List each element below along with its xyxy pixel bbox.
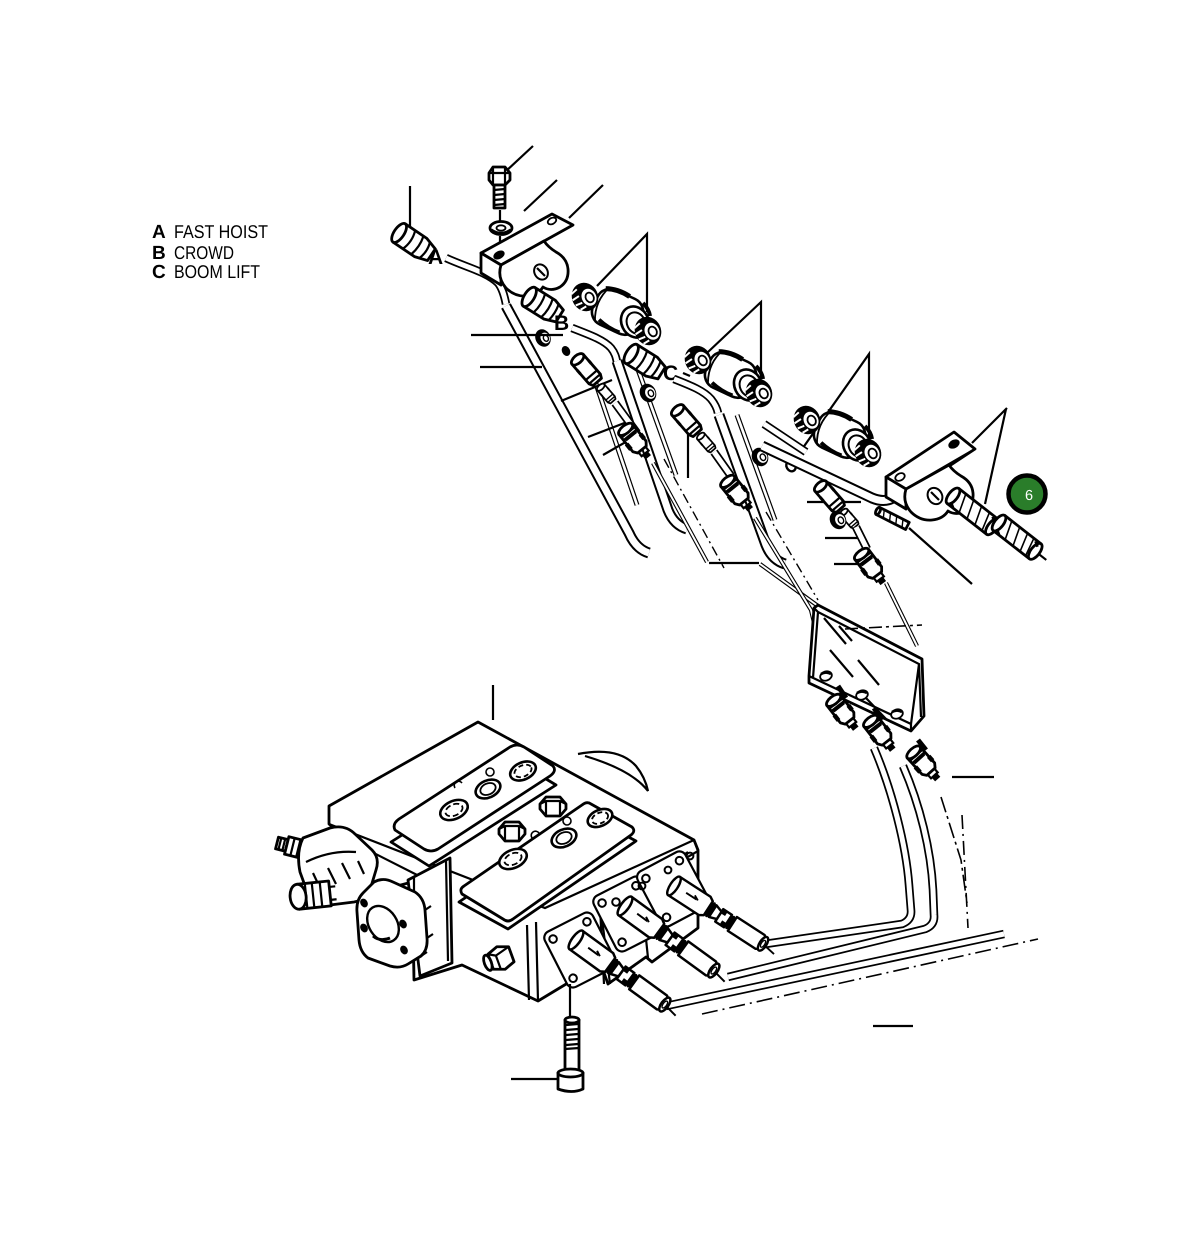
svg-text:B: B [554,312,569,335]
svg-text:FAST HOIST: FAST HOIST [174,221,268,242]
svg-text:A: A [152,222,166,243]
svg-text:BOOM LIFT: BOOM LIFT [174,261,260,282]
svg-text:C: C [152,262,166,283]
svg-text:6: 6 [1025,488,1033,504]
svg-text:A: A [428,246,443,269]
svg-text:B: B [152,243,166,264]
svg-text:CROWD: CROWD [174,242,234,263]
